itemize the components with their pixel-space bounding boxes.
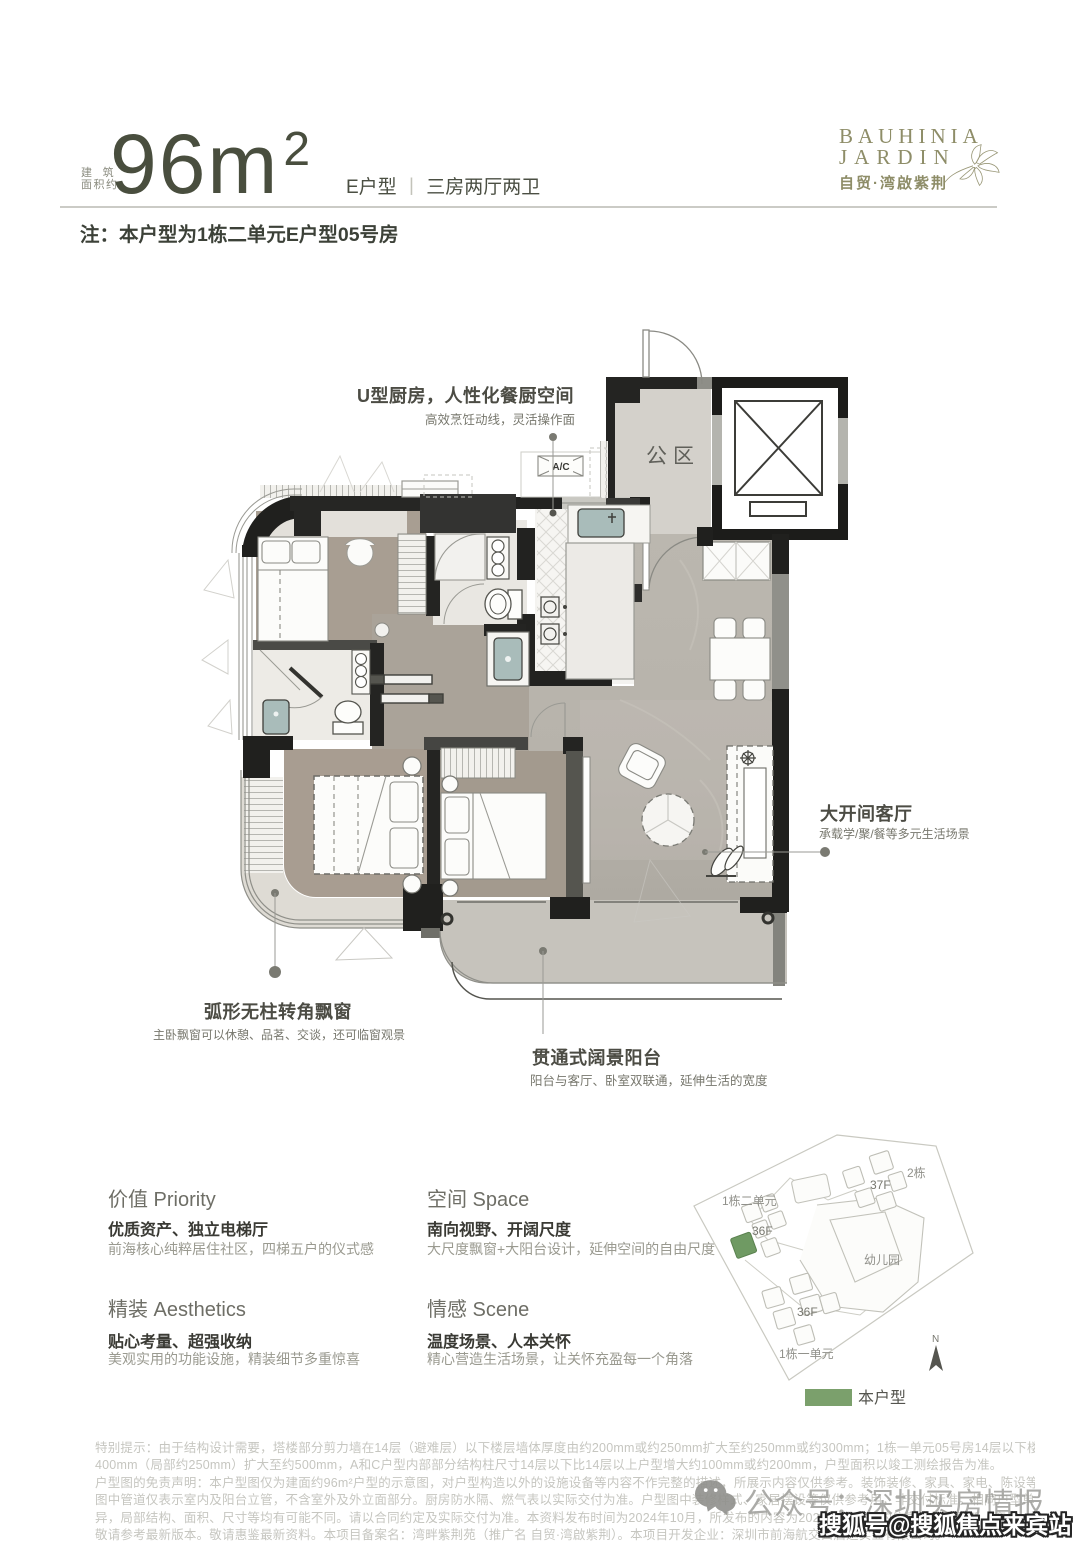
svg-text:N: N: [932, 1334, 939, 1345]
svg-text:本户型: 本户型: [858, 1389, 906, 1407]
svg-text:1栋一单元: 1栋一单元: [779, 1346, 834, 1361]
svg-text:37F: 37F: [870, 1178, 891, 1192]
svg-text:幼儿园: 幼儿园: [864, 1253, 900, 1267]
svg-text:36F: 36F: [797, 1305, 818, 1319]
svg-text:1栋二单元: 1栋二单元: [722, 1193, 777, 1208]
svg-text:36F: 36F: [752, 1224, 773, 1238]
svg-text:2栋: 2栋: [907, 1165, 926, 1180]
svg-text:公区: 公区: [646, 445, 700, 468]
svg-text:A/C: A/C: [552, 462, 569, 473]
